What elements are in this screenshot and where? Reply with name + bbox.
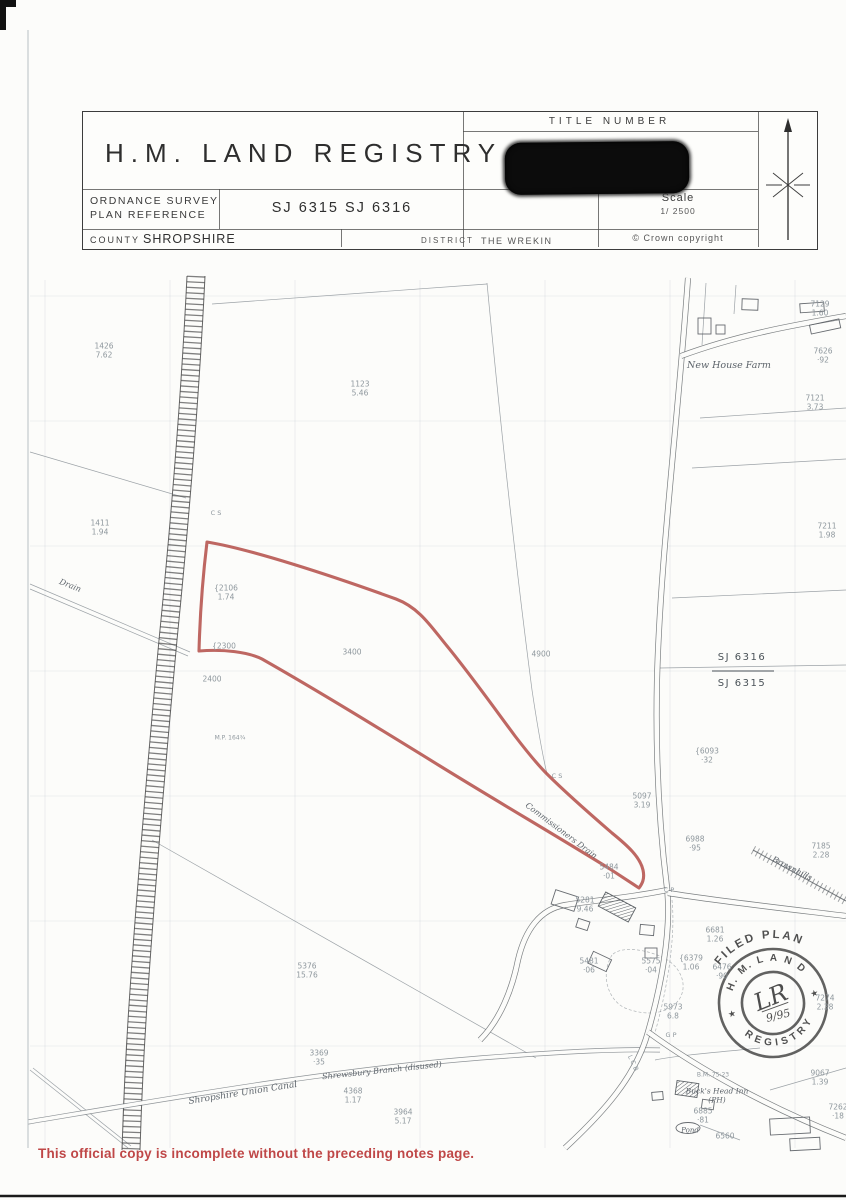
header-divider: [219, 189, 220, 229]
header-divider: [341, 229, 342, 247]
scale-cell: Scale 1/ 2500: [598, 192, 758, 216]
crown-copyright: © Crown copyright: [598, 233, 758, 243]
canal: [28, 1050, 660, 1122]
os-plan-reference-value: SJ 6315 SJ 6316: [223, 200, 461, 216]
scale-value: 1/ 2500: [598, 206, 758, 216]
title-number-redaction: [505, 141, 690, 195]
header-divider: [463, 131, 758, 132]
footer-notice: This official copy is incomplete without…: [38, 1146, 474, 1161]
title-number-label: TITLE NUMBER: [463, 116, 756, 127]
scale-label: Scale: [598, 192, 758, 204]
north-arrow-icon: [758, 112, 817, 247]
county-value: SHROPSHIRE: [143, 232, 236, 246]
stamp-star-left: ★: [727, 1008, 737, 1020]
stamp-star-right: ★: [809, 987, 819, 999]
railway: [122, 276, 205, 1150]
north-arrow-panel: [758, 112, 817, 247]
filed-plan-document: FILED PLAN H. M. L A N D REGISTRY ★ ★ LR…: [0, 0, 846, 1200]
os-label-line2: PLAN REFERENCE: [90, 208, 219, 222]
county-label: COUNTY: [90, 235, 140, 245]
district-value: THE WREKIN: [481, 236, 553, 246]
district-label: DISTRICT: [421, 236, 474, 245]
os-label-line1: ORDNANCE SURVEY: [90, 194, 219, 208]
parcel-boundary-red: [199, 542, 644, 888]
agency-title: H.M. LAND REGISTRY: [105, 138, 502, 169]
os-plan-reference-label: ORDNANCE SURVEY PLAN REFERENCE: [90, 194, 219, 222]
header-box: H.M. LAND REGISTRY TITLE NUMBER ORDNANCE…: [82, 111, 818, 250]
header-divider: [463, 112, 464, 247]
header-divider: [83, 229, 758, 230]
